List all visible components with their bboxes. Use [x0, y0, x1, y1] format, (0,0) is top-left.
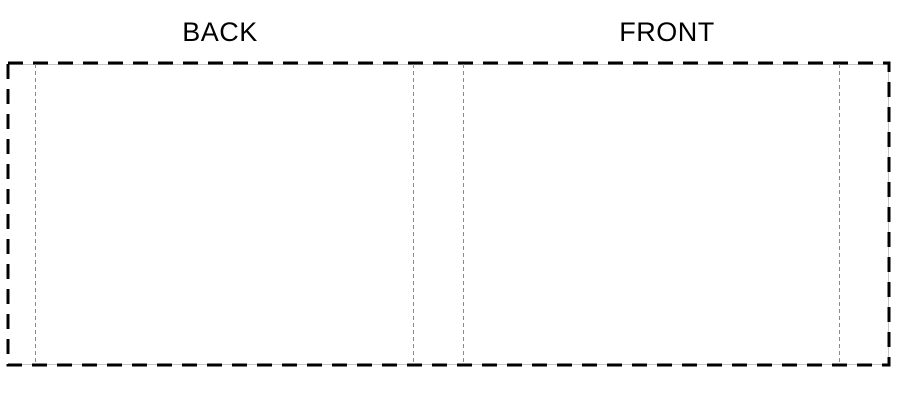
template-outline	[0, 0, 900, 401]
cover-template-diagram: BACK FRONT	[0, 0, 900, 401]
cut-line-base	[8, 65, 889, 365]
trim-dashed-border	[8, 63, 889, 365]
